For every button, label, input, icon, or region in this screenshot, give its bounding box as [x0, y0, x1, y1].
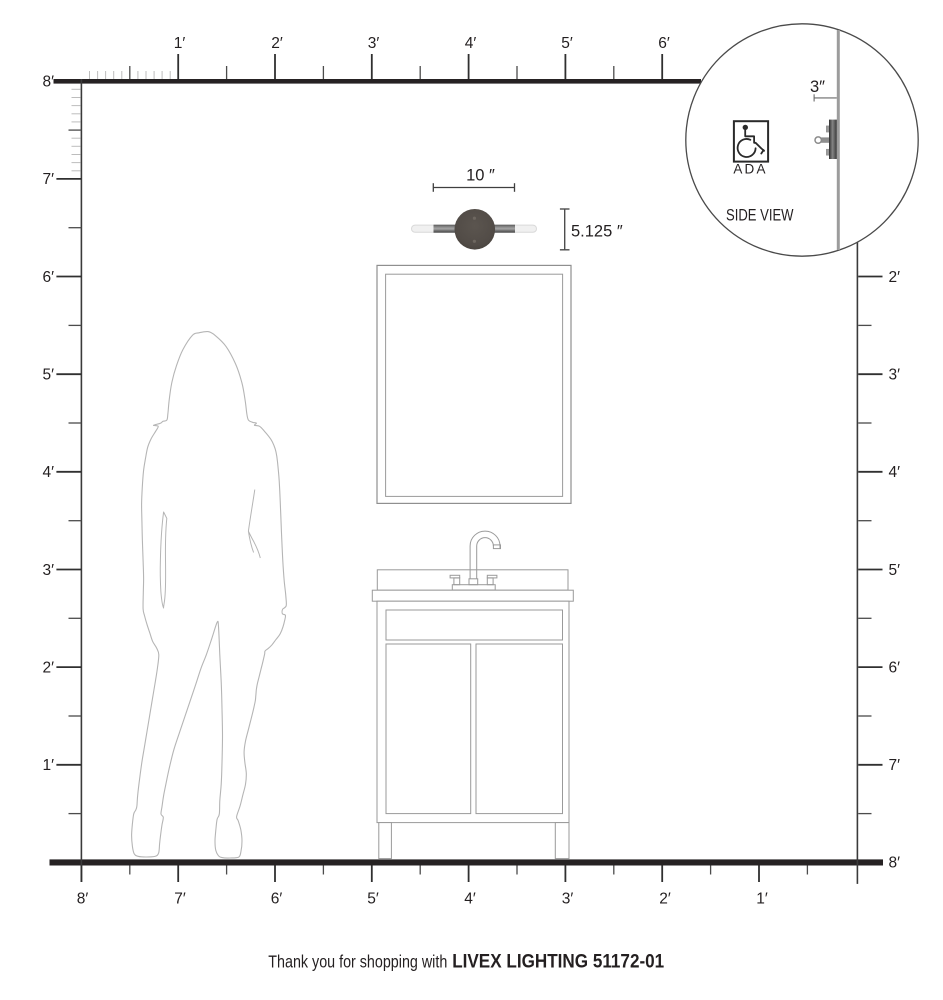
svg-text:3′: 3′	[889, 367, 901, 384]
svg-text:6′: 6′	[271, 891, 283, 908]
svg-text:4′: 4′	[889, 464, 901, 481]
svg-text:3′: 3′	[42, 562, 54, 579]
svg-text:4′: 4′	[42, 464, 54, 481]
svg-text:7′: 7′	[42, 171, 54, 188]
svg-text:8′: 8′	[889, 855, 901, 872]
svg-text:SIDE VIEW: SIDE VIEW	[726, 207, 794, 225]
svg-text:5′: 5′	[889, 562, 901, 579]
svg-text:7′: 7′	[889, 757, 901, 774]
svg-text:1′: 1′	[756, 891, 768, 908]
svg-text:3″: 3″	[810, 78, 825, 96]
svg-text:4′: 4′	[465, 35, 477, 52]
svg-text:6′: 6′	[658, 35, 670, 52]
svg-text:6′: 6′	[889, 659, 901, 676]
svg-text:10 ″: 10 ″	[466, 167, 495, 185]
svg-text:ADA: ADA	[733, 162, 767, 177]
svg-text:Thank you for shopping with: Thank you for shopping with	[268, 952, 447, 972]
svg-text:2′: 2′	[271, 35, 283, 52]
svg-text:5′: 5′	[42, 367, 54, 384]
svg-text:5′: 5′	[367, 891, 379, 908]
svg-text:LIVEX LIGHTING 51172-01: LIVEX LIGHTING 51172-01	[452, 951, 664, 973]
svg-text:7′: 7′	[174, 891, 186, 908]
svg-text:2′: 2′	[659, 891, 671, 908]
svg-text:8′: 8′	[42, 74, 54, 91]
svg-text:1′: 1′	[42, 757, 54, 774]
svg-text:4′: 4′	[464, 891, 476, 908]
svg-text:8′: 8′	[77, 891, 89, 908]
svg-text:1′: 1′	[174, 35, 186, 52]
svg-text:5.125 ″: 5.125 ″	[571, 222, 623, 240]
svg-text:2′: 2′	[889, 269, 901, 286]
svg-text:2′: 2′	[42, 659, 54, 676]
svg-text:3′: 3′	[368, 35, 380, 52]
svg-text:3′: 3′	[562, 891, 574, 908]
svg-text:6′: 6′	[42, 269, 54, 286]
svg-text:5′: 5′	[561, 35, 573, 52]
